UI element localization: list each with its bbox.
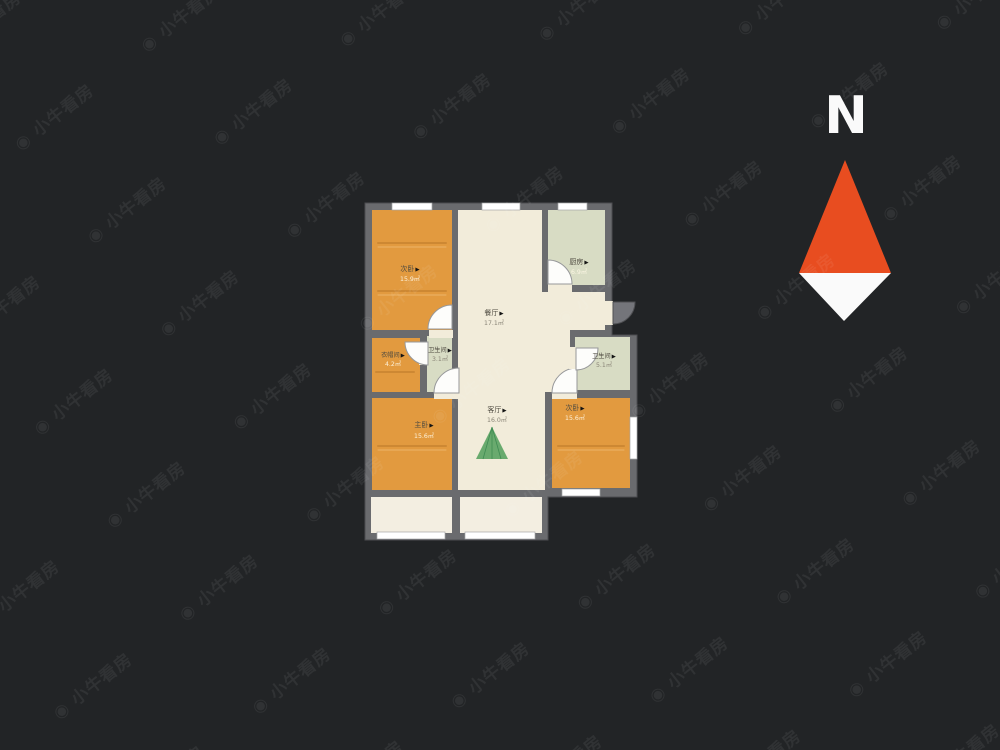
watermark-item: ◉ 小牛看房: [81, 130, 280, 321]
watermark-item: ◉ 小牛看房: [0, 0, 134, 135]
room-area: 15.6㎡: [565, 414, 586, 422]
room-label: 衣帽间▶: [381, 351, 406, 359]
room-area: 16.0㎡: [487, 416, 508, 424]
compass-needle-icon: [796, 154, 896, 326]
watermark-item: ◉ 小牛看房: [948, 200, 1000, 391]
watermark-item: ◉ 小牛看房: [61, 0, 260, 37]
watermark-item: ◉ 小牛看房: [260, 0, 459, 31]
watermark-item: ◉ 小牛看房: [0, 513, 172, 704]
room-area: 15.9㎡: [400, 275, 421, 283]
watermark-item: ◉ 小牛看房: [604, 20, 803, 211]
watermark-item: ◉ 小牛看房: [245, 600, 444, 750]
watermark-item: ◉ 小牛看房: [333, 0, 532, 124]
room-area: 6.9㎡: [571, 268, 588, 276]
watermark-item: ◉ 小牛看房: [0, 135, 81, 326]
watermark-item: ◉ 小牛看房: [172, 507, 371, 698]
watermark-item: ◉ 小牛看房: [967, 485, 1000, 676]
room-bedroom-bl: [372, 398, 452, 490]
watermark-item: ◉ 小牛看房: [207, 31, 406, 222]
entry-door-arc: [613, 302, 635, 324]
room-bedroom-br: [552, 398, 630, 488]
watermark-item: ◉ 小牛看房: [929, 0, 1000, 107]
screenshot-stage: 次卧▶ 15.9㎡ 厨房▶ 6.9㎡ 餐厅▶ 17.1㎡ 衣帽间▶ 4.2㎡ 卫…: [0, 0, 1000, 750]
watermark-item: ◉ 小牛看房: [532, 0, 731, 118]
balcony-left: [371, 497, 452, 533]
watermark-item: ◉ 小牛看房: [0, 228, 153, 419]
watermark-item: ◉ 小牛看房: [0, 327, 27, 518]
floorplan-svg: 次卧▶ 15.9㎡ 厨房▶ 6.9㎡ 餐厅▶ 17.1㎡ 衣帽间▶ 4.2㎡ 卫…: [360, 198, 640, 543]
window: [392, 203, 432, 210]
compass: N: [796, 88, 896, 328]
watermark-item: ◉ 小牛看房: [405, 26, 604, 217]
watermark-item: ◉ 小牛看房: [119, 698, 318, 750]
window: [377, 532, 445, 539]
watermark-item: ◉ 小牛看房: [715, 682, 914, 750]
watermark-item: ◉ 小牛看房: [658, 0, 857, 20]
watermark-item: ◉ 小牛看房: [769, 490, 968, 681]
watermark-item: ◉ 小牛看房: [696, 397, 895, 588]
watermark-item: ◉ 小牛看房: [459, 0, 658, 26]
room-label: 卫生间▶: [428, 346, 453, 354]
window: [465, 532, 535, 539]
watermark-item: ◉ 小牛看房: [0, 611, 46, 750]
room-area: 15.6㎡: [414, 432, 435, 440]
watermark-item: ◉ 小牛看房: [0, 420, 100, 611]
window: [558, 203, 587, 210]
watermark-item: ◉ 小牛看房: [0, 0, 61, 42]
watermark-item: ◉ 小牛看房: [623, 304, 822, 495]
window: [562, 489, 600, 496]
room-area: 4.2㎡: [385, 360, 402, 368]
window: [630, 417, 637, 459]
watermark-item: ◉ 小牛看房: [643, 589, 842, 750]
watermark-item: ◉ 小牛看房: [46, 606, 245, 750]
watermark-item: ◉ 小牛看房: [0, 704, 119, 750]
watermark-item: ◉ 小牛看房: [318, 693, 517, 750]
watermark-item: ◉ 小牛看房: [153, 223, 352, 414]
watermark-item: ◉ 小牛看房: [856, 0, 1000, 14]
watermark-item: ◉ 小牛看房: [841, 583, 1000, 750]
watermark-item: ◉ 小牛看房: [134, 0, 333, 130]
watermark-item: ◉ 小牛看房: [914, 676, 1000, 750]
room-area: 17.1㎡: [484, 319, 505, 327]
compass-north-label: N: [806, 88, 886, 145]
watermark-item: ◉ 小牛看房: [100, 414, 299, 605]
watermark-item: ◉ 小牛看房: [8, 37, 207, 228]
watermark-item: ◉ 小牛看房: [444, 594, 643, 750]
room-area: 3.1㎡: [432, 355, 449, 363]
floorplan: 次卧▶ 15.9㎡ 厨房▶ 6.9㎡ 餐厅▶ 17.1㎡ 衣帽间▶ 4.2㎡ 卫…: [360, 198, 640, 543]
window: [482, 203, 520, 210]
watermark-item: ◉ 小牛看房: [517, 687, 716, 750]
balcony-mid: [460, 497, 542, 533]
watermark-item: ◉ 小牛看房: [0, 42, 8, 233]
watermark-item: ◉ 小牛看房: [27, 321, 226, 512]
room-area: 5.1㎡: [596, 361, 613, 369]
watermark-item: ◉ 小牛看房: [895, 392, 1000, 583]
room-label: 卫生间▶: [592, 352, 617, 360]
